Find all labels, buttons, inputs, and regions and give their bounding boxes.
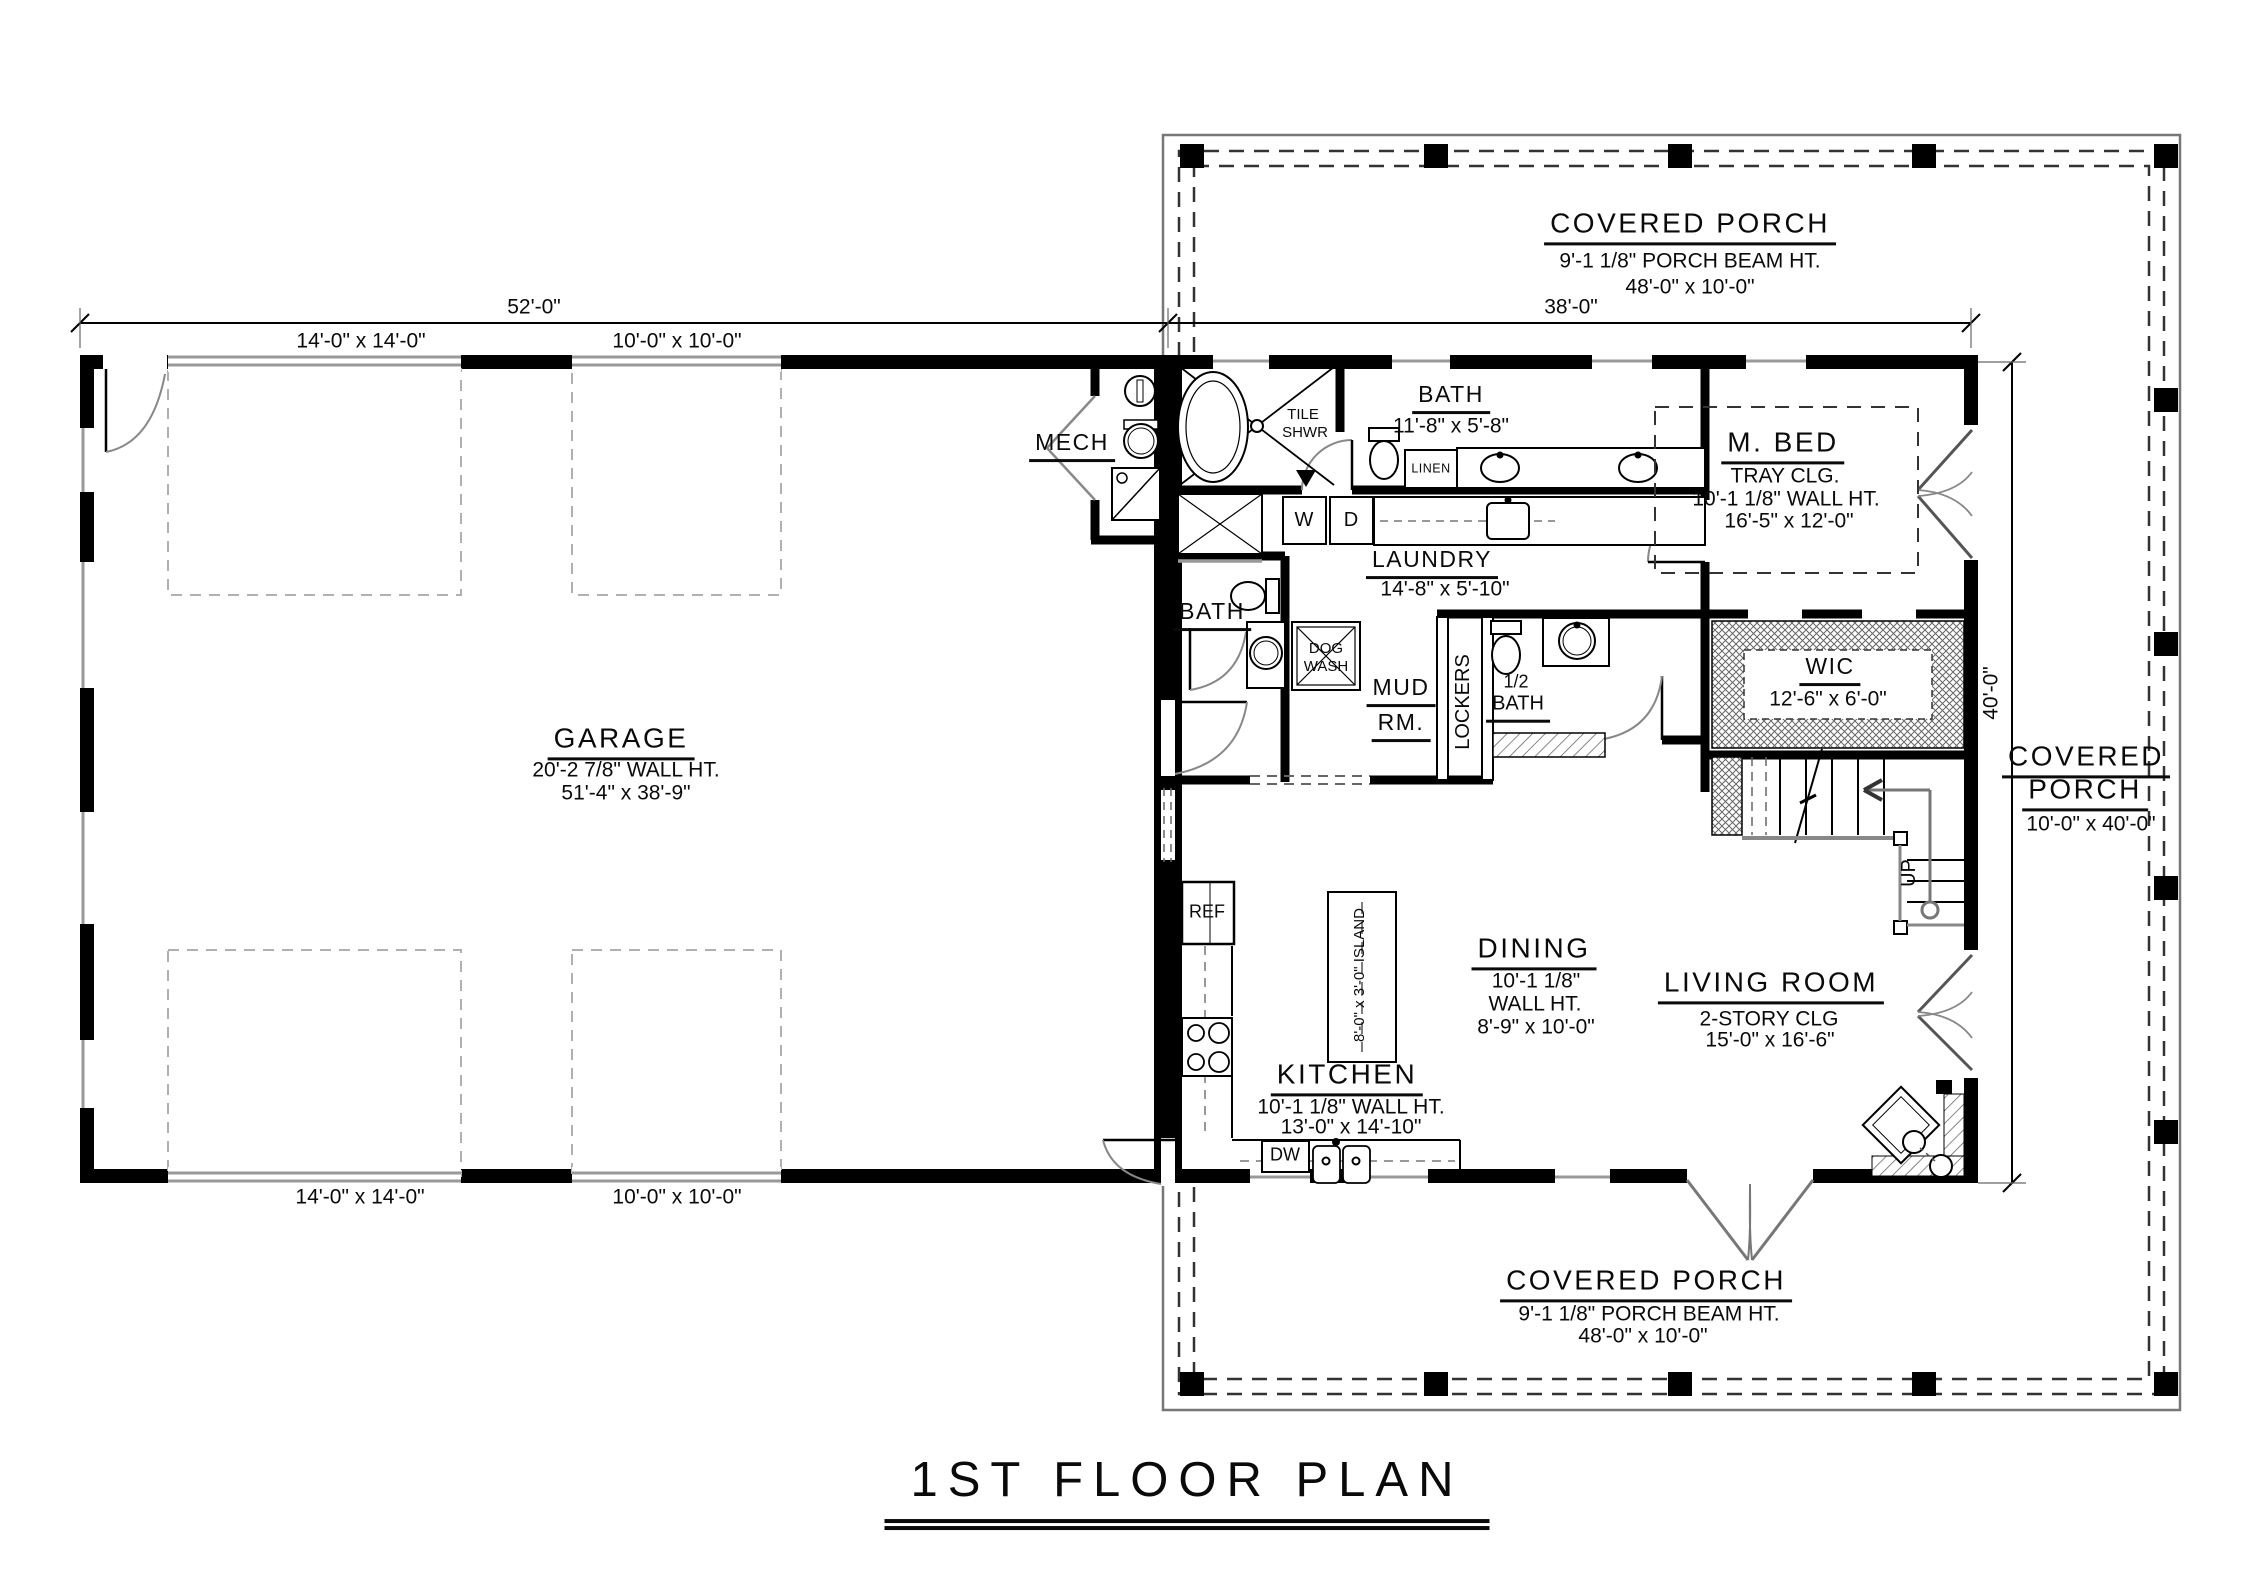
master-bath-size: 11'-8" x 5'-8" <box>1393 416 1509 439</box>
linen-label: LINEN <box>1411 462 1450 476</box>
wic-size: 12'-6" x 6'-0" <box>1769 689 1886 712</box>
dw-label: DW <box>1270 1145 1300 1164</box>
master-bed-name: M. BED <box>1721 427 1844 464</box>
tile-shwr-line1: TILE <box>1287 407 1319 423</box>
lockers-label: LOCKERS <box>1453 654 1475 750</box>
garage-door-small-top-label: 10'-0" x 10'-0" <box>612 331 741 354</box>
dim-house-depth: 40'-0" <box>1981 666 2004 720</box>
sheet-title: 1ST FLOOR PLAN <box>884 1454 1489 1530</box>
washer-label: W <box>1295 510 1314 532</box>
plan-linework <box>0 0 2267 1589</box>
dog-w-line2: WASH <box>1304 659 1348 675</box>
mud-room-line1: MUD <box>1367 675 1436 707</box>
stairs-up-label: UP <box>1899 859 1921 887</box>
dim-garage-width: 52'-0" <box>507 297 561 320</box>
master-bed-ceiling: TRAY CLG. <box>1731 466 1840 489</box>
porch-right-size: 10'-0" x 40'-0" <box>2026 814 2155 837</box>
master-bath-name: BATH <box>1412 382 1490 414</box>
porch-bottom-name: COVERED PORCH <box>1500 1265 1792 1302</box>
garage-name: GARAGE <box>548 723 695 760</box>
garage-door-large-bottom-label: 14'-0" x 14'-0" <box>295 1187 424 1210</box>
bath2-name: BATH <box>1173 599 1251 631</box>
dog-w-line1: DOG <box>1309 641 1343 657</box>
double-vanity-icon <box>1457 448 1705 488</box>
wic-name: WIC <box>1799 654 1860 686</box>
shower-pan-icon <box>1178 494 1262 561</box>
kitchen-name: KITCHEN <box>1271 1059 1423 1096</box>
mech-name: MECH <box>1029 430 1115 462</box>
mud-room-line2: RM. <box>1372 710 1431 742</box>
dining-wall-ht2: WALL HT. <box>1489 994 1582 1017</box>
stove-icon <box>1182 1018 1232 1076</box>
living-size: 15'-0" x 16'-6" <box>1705 1030 1834 1053</box>
master-bed-size: 16'-5" x 12'-0" <box>1724 511 1853 534</box>
dining-wall-ht1: 10'-1 1/8" <box>1492 971 1581 994</box>
kitchen-size: 13'-0" x 14'-10" <box>1281 1117 1422 1140</box>
garage-wall-ht: 20'-2 7/8" WALL HT. <box>532 760 719 783</box>
garage-size: 51'-4" x 38'-9" <box>561 783 690 806</box>
tile-shwr-line2: SHWR <box>1282 425 1328 441</box>
laundry-name: LAUNDRY <box>1366 547 1498 579</box>
living-name: LIVING ROOM <box>1658 967 1884 1004</box>
porch-top-beam: 9'-1 1/8" PORCH BEAM HT. <box>1559 251 1820 274</box>
half-bath-line1: 1/2 <box>1503 672 1528 691</box>
garage-door-large-top-label: 14'-0" x 14'-0" <box>296 331 425 354</box>
porch-right-name2: PORCH <box>2022 774 2148 811</box>
porch-top-name: COVERED PORCH <box>1544 208 1836 245</box>
dryer-label: D <box>1344 510 1358 532</box>
dining-size: 8'-9" x 10'-0" <box>1477 1017 1594 1040</box>
porch-top-size: 48'-0" x 10'-0" <box>1625 277 1754 300</box>
laundry-size: 14'-8" x 5'-10" <box>1380 579 1509 602</box>
island-label: 8'-0" x 3'-0" ISLAND <box>1352 908 1368 1042</box>
tub-icon <box>1178 372 1248 482</box>
half-bath-line2: BATH <box>1486 694 1550 723</box>
dim-house-width: 38'-0" <box>1544 297 1598 320</box>
porch-bottom-beam: 9'-1 1/8" PORCH BEAM HT. <box>1518 1304 1779 1327</box>
master-bed-wall-ht: 10'-1 1/8" WALL HT. <box>1692 489 1879 512</box>
garage-door-small-bottom-label: 10'-0" x 10'-0" <box>612 1187 741 1210</box>
dining-name: DINING <box>1472 933 1597 970</box>
porch-bottom-size: 48'-0" x 10'-0" <box>1578 1326 1707 1349</box>
ref-label: REF <box>1189 902 1225 921</box>
floor-plan: COVERED PORCH 9'-1 1/8" PORCH BEAM HT. 4… <box>0 0 2267 1589</box>
